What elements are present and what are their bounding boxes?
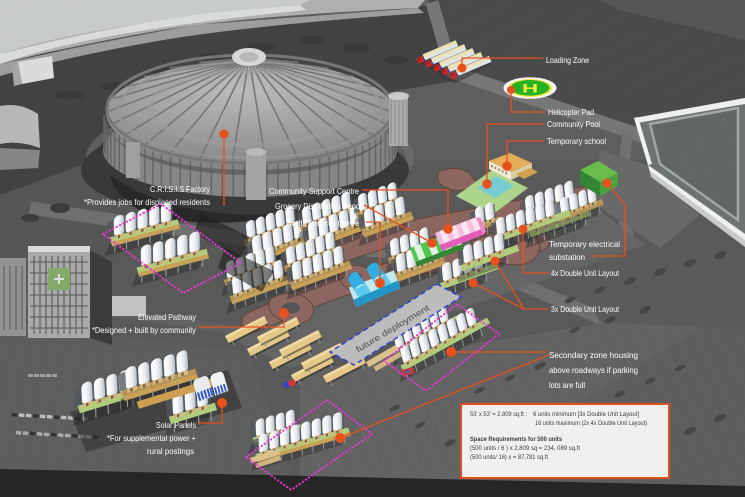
svg-text:53' x 53' = 2,809 sq.ft :: 53' x 53' = 2,809 sq.ft :	[470, 411, 527, 418]
svg-text:*Provides jobs for displaced r: *Provides jobs for displaced residents	[84, 197, 210, 207]
svg-text:Grocery Distribution Depot: Grocery Distribution Depot	[275, 201, 363, 211]
svg-text:3x Double Unit Layout: 3x Double Unit Layout	[551, 304, 620, 314]
svg-text:above roadways if parking: above roadways if parking	[549, 365, 638, 375]
svg-text:*For supplemental power +: *For supplemental power +	[107, 433, 196, 443]
svg-text:C.R.I.S.I.S Factory: C.R.I.S.I.S Factory	[150, 184, 211, 194]
svg-text:*Designed + built by community: *Designed + built by community	[92, 325, 197, 335]
svg-text:Space Requirements for 500 uni: Space Requirements for 500 units	[470, 436, 562, 443]
svg-text:6 units minimum [3x Double Uni: 6 units minimum [3x Double Unit Layout]	[533, 411, 639, 418]
svg-text:(500 units/ 16) x = 87,781 sq.: (500 units/ 16) x = 87,781 sq.ft	[470, 454, 548, 461]
svg-text:Health Services Centre: Health Services Centre	[286, 218, 359, 228]
svg-text:Solar Panels: Solar Panels	[156, 420, 196, 430]
svg-text:Helicopter Pad: Helicopter Pad	[548, 107, 594, 117]
svg-text:Secondary zone housing: Secondary zone housing	[549, 350, 638, 360]
svg-text:substation: substation	[549, 252, 585, 262]
svg-text:Loading Zone: Loading Zone	[546, 55, 589, 65]
svg-text:Community Support Centre: Community Support Centre	[269, 186, 359, 196]
svg-text:(500 units / 6 ) x 2,809 sq =: (500 units / 6 ) x 2,809 sq = 234, 089 s…	[470, 445, 580, 452]
svg-text:Temporary school: Temporary school	[547, 136, 606, 146]
svg-text:Community Pool: Community Pool	[547, 119, 600, 129]
svg-text:rural postings: rural postings	[147, 446, 194, 456]
svg-text:lots are full: lots are full	[549, 380, 585, 390]
svg-text:Temporary electrical: Temporary electrical	[549, 239, 620, 249]
svg-text:4x Double Unit Layout: 4x Double Unit Layout	[551, 268, 620, 278]
svg-text:16 units maximum (2x 4x Doub: 16 units maximum (2x 4x Double Unit Layo…	[535, 420, 647, 427]
svg-text:Elevated Pathway: Elevated Pathway	[138, 312, 197, 322]
